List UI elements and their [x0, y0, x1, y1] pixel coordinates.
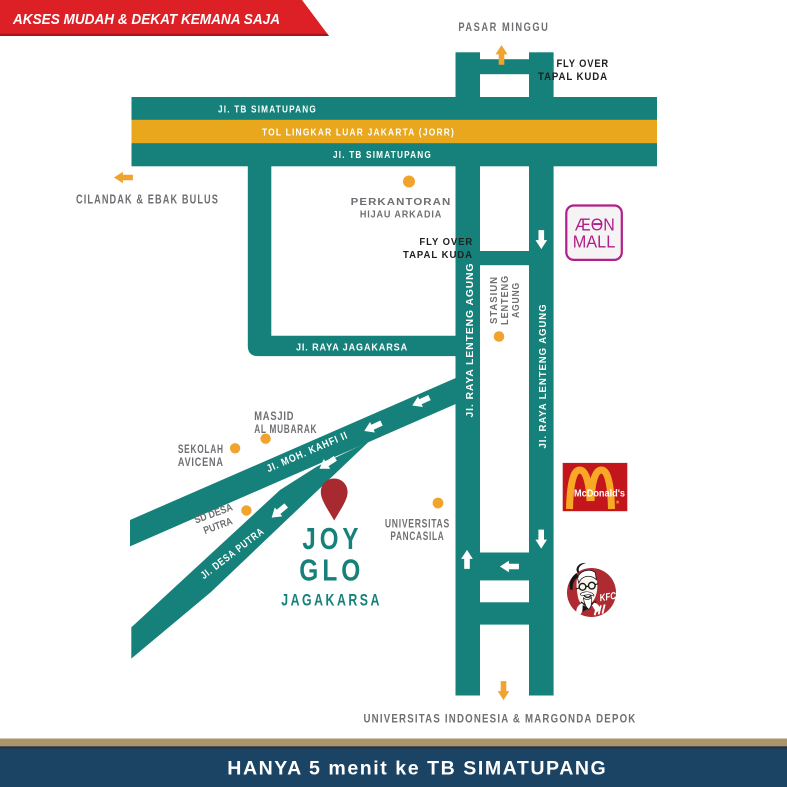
svg-text:GLO: GLO: [299, 554, 364, 588]
svg-text:SEKOLAH: SEKOLAH: [178, 444, 224, 456]
svg-text:PANCASILA: PANCASILA: [390, 531, 444, 543]
svg-text:FLY OVER: FLY OVER: [557, 58, 610, 70]
svg-text:JOY: JOY: [302, 522, 362, 556]
svg-text:HIJAU ARKADIA: HIJAU ARKADIA: [360, 209, 442, 221]
svg-text:AL MUBARAK: AL MUBARAK: [254, 424, 317, 436]
svg-text:TOL LINGKAR LUAR JAKARTA (JORR: TOL LINGKAR LUAR JAKARTA (JORR): [262, 128, 455, 139]
svg-text:TAPAL KUDA: TAPAL KUDA: [538, 71, 608, 83]
svg-text:TAPAL KUDA: TAPAL KUDA: [403, 250, 473, 261]
svg-text:PASAR MINGGU: PASAR MINGGU: [458, 20, 549, 34]
svg-text:JI. RAYA LENTENG AGUNG: JI. RAYA LENTENG AGUNG: [464, 263, 476, 418]
svg-text:UNIVERSITAS INDONESIA & MARGON: UNIVERSITAS INDONESIA & MARGONDA DEPOK: [364, 712, 637, 726]
svg-text:HANYA 5 menit ke TB SIMATUPANG: HANYA 5 menit ke TB SIMATUPANG: [227, 759, 607, 780]
svg-text:CILANDAK & EBAK BULUS: CILANDAK & EBAK BULUS: [76, 193, 219, 207]
svg-text:JI. RAYA JAGAKARSA: JI. RAYA JAGAKARSA: [296, 342, 408, 354]
svg-text:MASJID: MASJID: [254, 411, 294, 423]
svg-text:AVICENA: AVICENA: [178, 457, 224, 469]
svg-text:JAGAKARSA: JAGAKARSA: [281, 590, 382, 609]
svg-text:AKSES MUDAH & DEKAT KEMANA SAJ: AKSES MUDAH & DEKAT KEMANA SAJA: [12, 11, 280, 28]
svg-text:FLY OVER: FLY OVER: [419, 237, 473, 248]
svg-text:JI. TB SIMATUPANG: JI. TB SIMATUPANG: [218, 105, 317, 116]
svg-text:JI. TB SIMATUPANG: JI. TB SIMATUPANG: [333, 150, 432, 161]
svg-text:McDonald's: McDonald's: [574, 489, 625, 500]
svg-text:MALL: MALL: [573, 232, 616, 252]
svg-text:UNIVERSITAS: UNIVERSITAS: [385, 519, 450, 531]
svg-text:PERKANTORAN: PERKANTORAN: [351, 196, 452, 208]
svg-text:AGUNG: AGUNG: [510, 282, 522, 318]
svg-text:JI. RAYA LENTENG AGUNG: JI. RAYA LENTENG AGUNG: [537, 304, 549, 449]
